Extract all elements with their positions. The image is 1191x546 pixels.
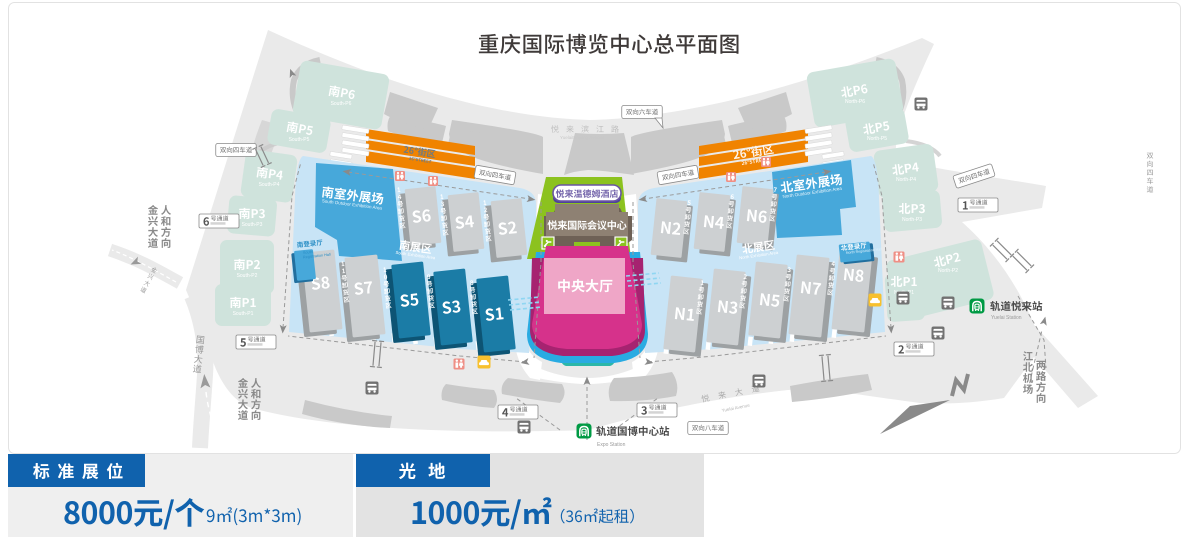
svg-text:North-P5: North-P5 bbox=[867, 136, 887, 142]
svg-text:North-P3: North-P3 bbox=[902, 217, 922, 223]
svg-text:South-P3: South-P3 bbox=[242, 222, 263, 228]
svg-text:South-P5: South-P5 bbox=[289, 137, 310, 143]
svg-text:Yuelai Station: Yuelai Station bbox=[991, 315, 1022, 321]
svg-text:South-P6: South-P6 bbox=[331, 101, 352, 107]
svg-text:South-P4: South-P4 bbox=[259, 182, 280, 188]
svg-text:North-P6: North-P6 bbox=[845, 99, 865, 105]
svg-text:South-P1: South-P1 bbox=[233, 311, 254, 317]
svg-text:North-P2: North-P2 bbox=[938, 268, 958, 274]
svg-text:South-P2: South-P2 bbox=[237, 273, 258, 279]
svg-text:YuelaiBinjiang Avenue: YuelaiBinjiang Avenue bbox=[560, 135, 605, 140]
svg-text:North-P4: North-P4 bbox=[896, 177, 916, 183]
svg-text:Expo Station: Expo Station bbox=[597, 442, 626, 448]
